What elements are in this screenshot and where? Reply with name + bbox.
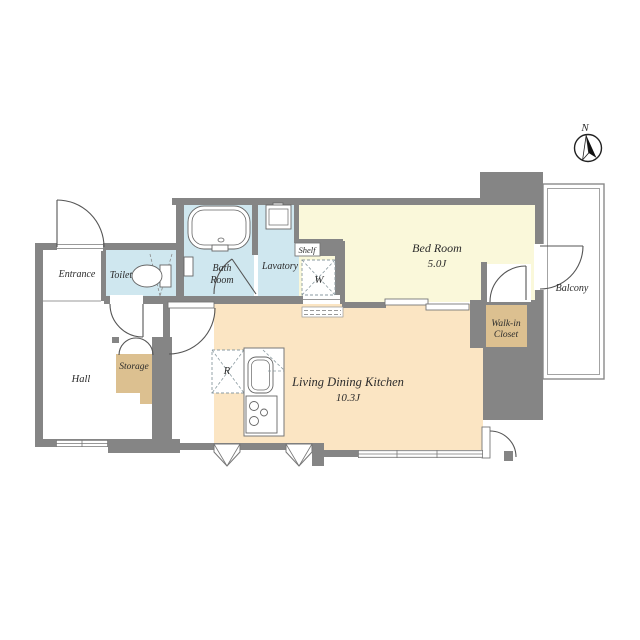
compass-north-label: N [580,122,589,134]
lavatory-label: Lavatory [261,261,299,272]
wall-segment [112,337,119,343]
balcony-door-opening [534,244,544,290]
wall-segment [535,205,543,244]
entrance-label: Entrance [58,269,96,280]
washing-machine-label: W [314,274,324,286]
north-compass: N [575,122,602,162]
wall-segment [294,203,299,243]
wall-segment [172,198,480,205]
shower-fixture-icon [184,257,193,276]
toilet-label: Toilet [110,270,133,281]
sink-icon [266,205,291,229]
ldk-area-label: 10.3J [336,392,361,404]
wall-segment [324,450,362,457]
wall-segment [35,243,43,447]
hall-label: Hall [71,374,91,385]
ldk-label: Living Dining Kitchen [291,375,404,389]
walk-in-closet-label-line1: Walk-in [491,319,520,329]
storage-door-swing-right [136,338,153,355]
ldk-door-swing [169,308,215,354]
toilet-bowl-icon [132,265,162,287]
ldk-door-leaf [168,302,214,308]
bed-room-area-label: 5.0J [428,258,448,270]
toilet-door-swing [110,304,143,337]
walk-in-closet-label-line2: Closet [494,330,519,340]
bedroom-sliding-panel [385,299,428,305]
entrance-door-opening [57,242,103,251]
wall-segment [35,243,57,250]
bed-room-label: Bed Room [412,241,462,255]
wall-segment [252,203,258,255]
vent-shaft-icon [214,444,240,466]
wall-segment [103,243,184,250]
bathtub-deck [212,245,228,251]
ldk-exit-door-frame [482,427,490,458]
floor-plan-drawing: N Entrance Toilet Bath Room Lavatory She… [0,0,640,640]
floor-plan-page: N Entrance Toilet Bath Room Lavatory She… [0,0,640,640]
storage-label: Storage [119,362,149,372]
balcony-area [543,184,604,379]
storage-door-swing-left [119,338,136,355]
bedroom-sliding-panel [426,304,469,310]
wall-segment [101,248,106,301]
wall-segment [504,451,513,461]
refrigerator-label: R [223,366,231,377]
balcony-outline [543,184,604,379]
bath-room-label-line1: Bath [213,263,232,274]
balcony-label: Balcony [556,283,589,294]
wall-segment [176,198,184,304]
toilet-door-opening [110,295,143,305]
entrance-door-swing [57,200,104,247]
shelf-label: Shelf [299,245,318,255]
wall-segment [342,302,386,308]
vent-shaft-icon [286,444,312,466]
wall-segment [480,172,543,205]
wall-segment [320,241,345,256]
lavatory-threshold [302,307,343,317]
wall-segment [481,262,487,302]
wall-segment [312,443,324,466]
bath-room-label-line2: Room [209,275,233,286]
